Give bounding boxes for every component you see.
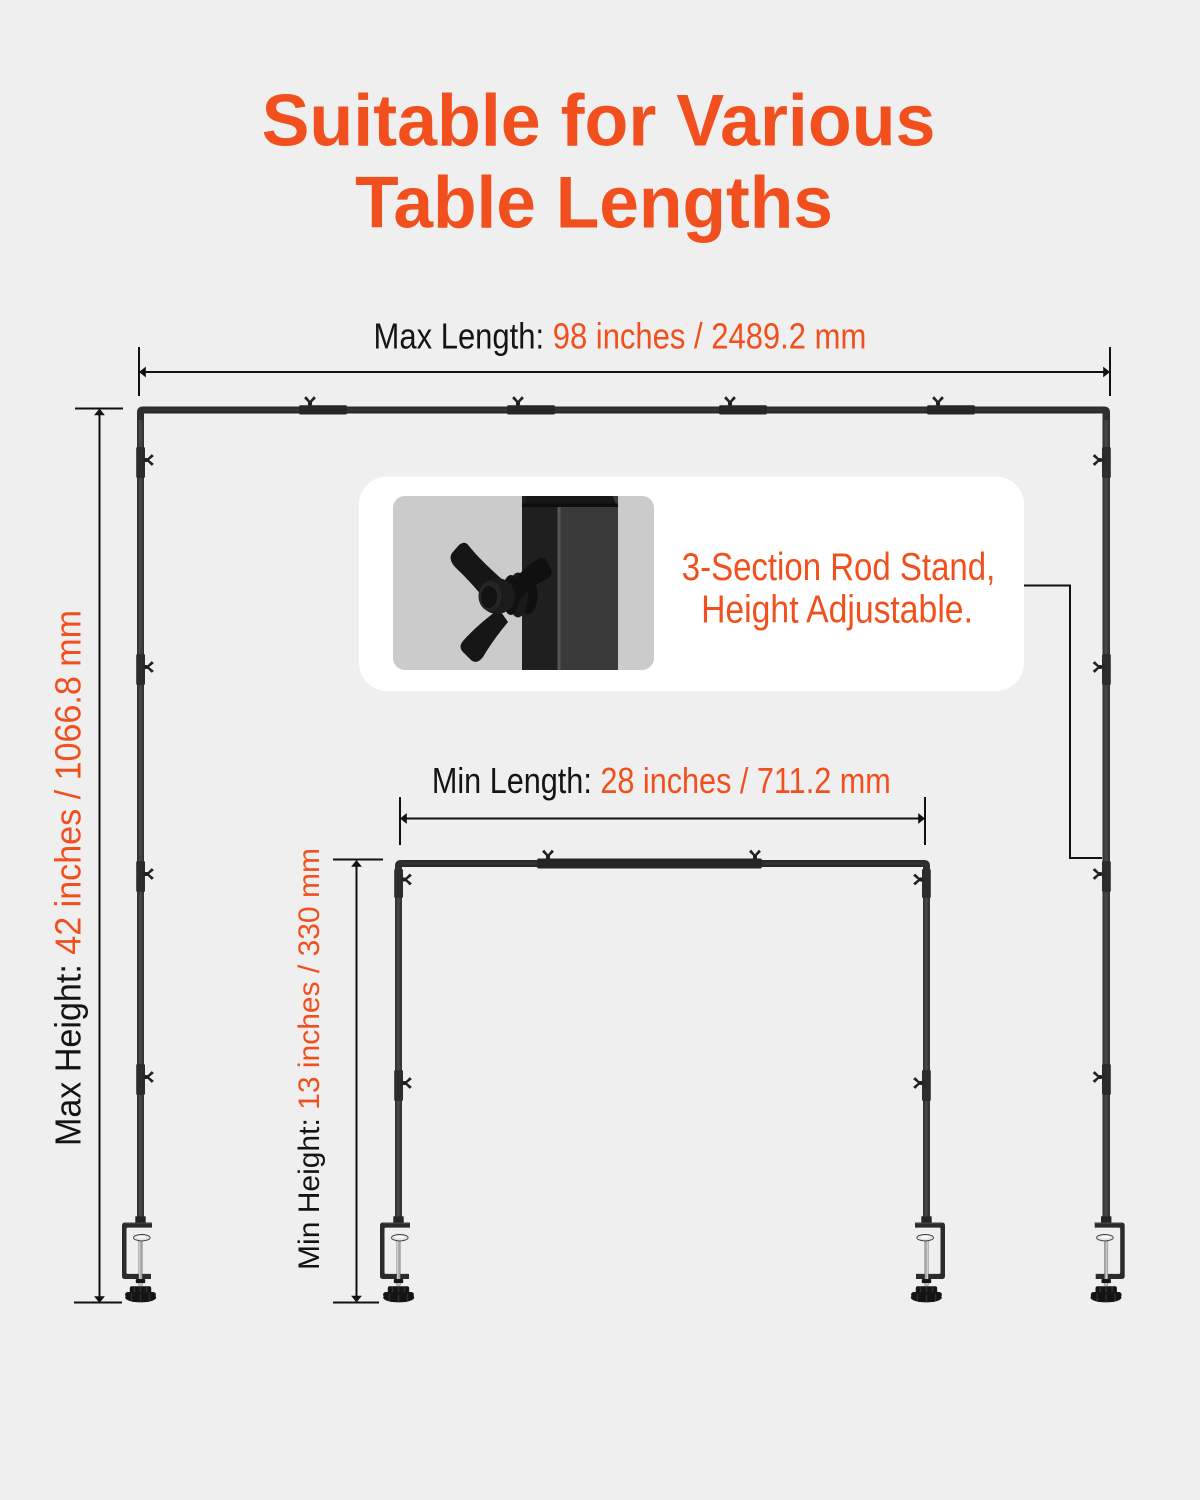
svg-text:Min Length: 28 inches / 711.2: Min Length: 28 inches / 711.2 mm — [432, 762, 891, 802]
svg-text:Min Height: 13 inches / 330 mm: Min Height: 13 inches / 330 mm — [293, 848, 326, 1270]
svg-text:Table Lengths: Table Lengths — [355, 162, 833, 244]
svg-text:Max Height: 42 inches / 1066.8: Max Height: 42 inches / 1066.8 mm — [49, 610, 89, 1146]
svg-text:Height Adjustable.: Height Adjustable. — [701, 587, 973, 631]
svg-text:Suitable for Various: Suitable for Various — [262, 80, 936, 162]
svg-text:3-Section Rod Stand,: 3-Section Rod Stand, — [682, 544, 996, 588]
svg-text:Max Length: 98 inches / 2489.2: Max Length: 98 inches / 2489.2 mm — [374, 317, 867, 357]
